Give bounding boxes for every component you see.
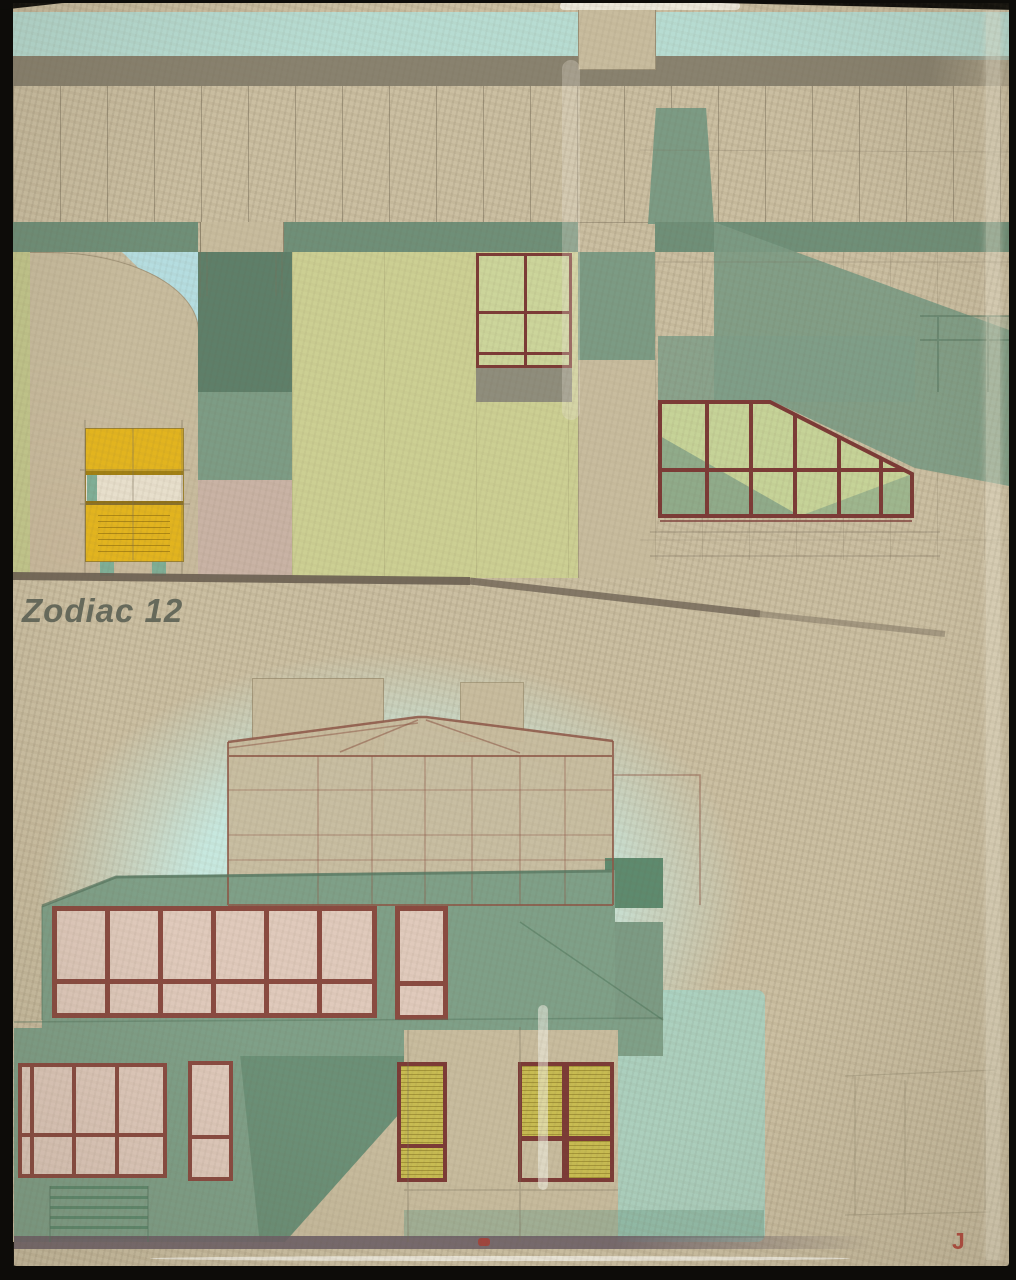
book-cover-scan: Zodiac 12 (0, 0, 1016, 1280)
ribbon-transom (57, 979, 372, 984)
ground-window-a (18, 1063, 167, 1178)
ground-window-b (188, 1061, 233, 1181)
kiosk-white-band (86, 475, 183, 501)
entry-steps (50, 1186, 148, 1242)
narrow-window (395, 906, 448, 1020)
pillar-dark (198, 252, 292, 392)
photo-edge-left (0, 0, 13, 1280)
yellow-window-2-rail (522, 1136, 610, 1141)
ground-window-a-mullion (115, 1067, 119, 1174)
tower-lower-tan (578, 360, 656, 578)
paper-scuff-streak (562, 60, 580, 420)
yellow-window-2 (518, 1062, 614, 1182)
photo-edge-right (1009, 0, 1016, 1280)
ribbon-mullion (317, 911, 322, 1013)
narrow-window-transom (400, 981, 443, 986)
window-gray-panel (476, 368, 572, 402)
spandrel-ledge (14, 1028, 42, 1056)
colonnade-wall (13, 86, 1009, 223)
ribbon-mullion (211, 911, 216, 1013)
spine-highlight (986, 10, 1000, 1260)
yellow-window-1 (397, 1062, 447, 1182)
tower-upper-green (578, 252, 655, 360)
ribbon-window (52, 906, 377, 1018)
yellow-kiosk (85, 428, 184, 562)
green-band-right (655, 222, 1009, 252)
torn-top-edge (560, 2, 740, 10)
sky-band (13, 12, 1009, 60)
pillar-light (198, 392, 292, 480)
photo-corner-bottom-left (0, 1242, 14, 1280)
kiosk-teal-tab (87, 475, 97, 501)
upper-window (476, 253, 572, 368)
cover-title: Zodiac 12 (22, 592, 183, 630)
green-band-left (13, 222, 198, 252)
ribbon-mullion (264, 911, 269, 1013)
yellow-glass (401, 1066, 443, 1178)
green-tower (648, 108, 714, 224)
right-wall-faint-grid (655, 252, 1009, 560)
band-gap-box (200, 222, 284, 252)
torn-bottom-edge (150, 1256, 850, 1261)
ground-strip (14, 1236, 874, 1249)
yellow-window-1-rail (401, 1144, 443, 1148)
red-dot-mark (478, 1238, 490, 1246)
ribbon-mullion (105, 911, 110, 1013)
upper-window-transom (479, 311, 569, 314)
yellow-window-2-mullion (562, 1066, 569, 1178)
ground-green-wash (404, 1210, 764, 1238)
corner-letter-mark: J (952, 1228, 965, 1255)
rooftop-box (578, 6, 656, 70)
roof-gray-band (13, 56, 1009, 86)
upper-window-rail (479, 352, 569, 355)
ground-window-a-mullion (30, 1067, 34, 1174)
photo-edge-bottom (0, 1266, 1016, 1280)
kiosk-scribble-text (98, 515, 170, 553)
green-band-center (282, 222, 578, 252)
kiosk-rail-bottom (86, 501, 183, 505)
ground-window-a-transom (22, 1133, 163, 1137)
pillar-base-pink (198, 480, 292, 578)
left-edge-strip (13, 252, 30, 578)
yellow-glass (569, 1141, 610, 1178)
ribbon-mullion (158, 911, 163, 1013)
paper-scratch (538, 1005, 548, 1190)
ground-window-a-mullion (72, 1067, 76, 1174)
yellow-glass (569, 1066, 610, 1136)
ground-window-b-transom (192, 1135, 229, 1139)
